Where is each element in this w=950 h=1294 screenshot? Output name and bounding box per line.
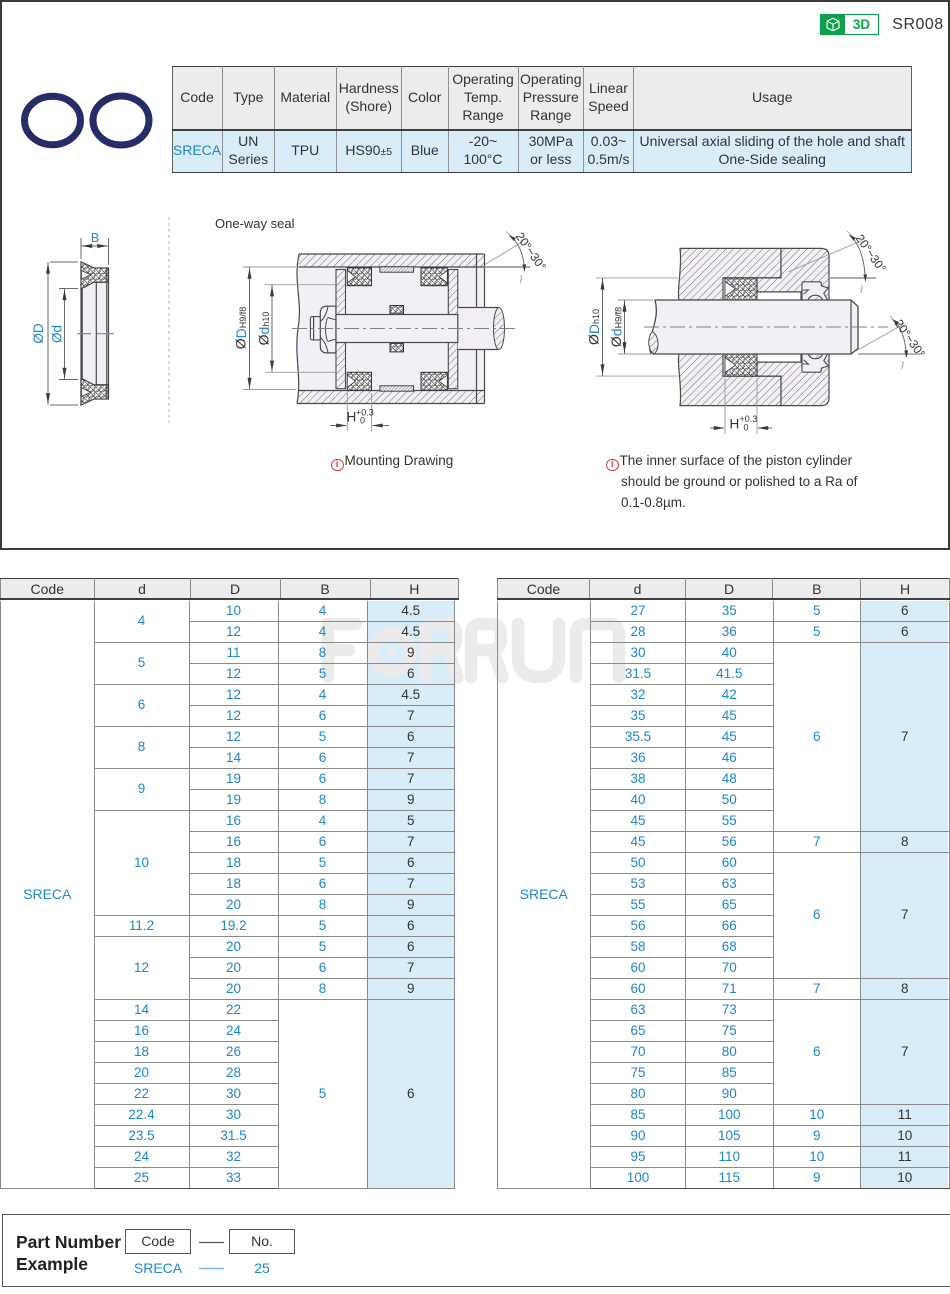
svg-text:20°~30°: 20°~30° bbox=[853, 232, 889, 276]
svg-text:One-way seal: One-way seal bbox=[215, 216, 295, 231]
svg-text:ØDh10: ØDh10 bbox=[586, 309, 602, 345]
svg-text:Ødh10: Ødh10 bbox=[256, 312, 272, 346]
svg-text:ØdH9/f8: ØdH9/f8 bbox=[608, 307, 624, 347]
svg-text:0: 0 bbox=[360, 416, 365, 426]
svg-text:H: H bbox=[347, 410, 357, 425]
svg-text:25: 25 bbox=[254, 1260, 270, 1276]
svg-text:0: 0 bbox=[744, 423, 749, 433]
svg-text:Ød: Ød bbox=[50, 325, 65, 343]
svg-text:ØD: ØD bbox=[31, 323, 46, 344]
svg-text:SRECA: SRECA bbox=[134, 1260, 183, 1276]
svg-text:B: B bbox=[91, 231, 99, 245]
svg-text:H: H bbox=[730, 417, 740, 432]
svg-text:ØDH9/f8: ØDH9/f8 bbox=[233, 307, 249, 350]
